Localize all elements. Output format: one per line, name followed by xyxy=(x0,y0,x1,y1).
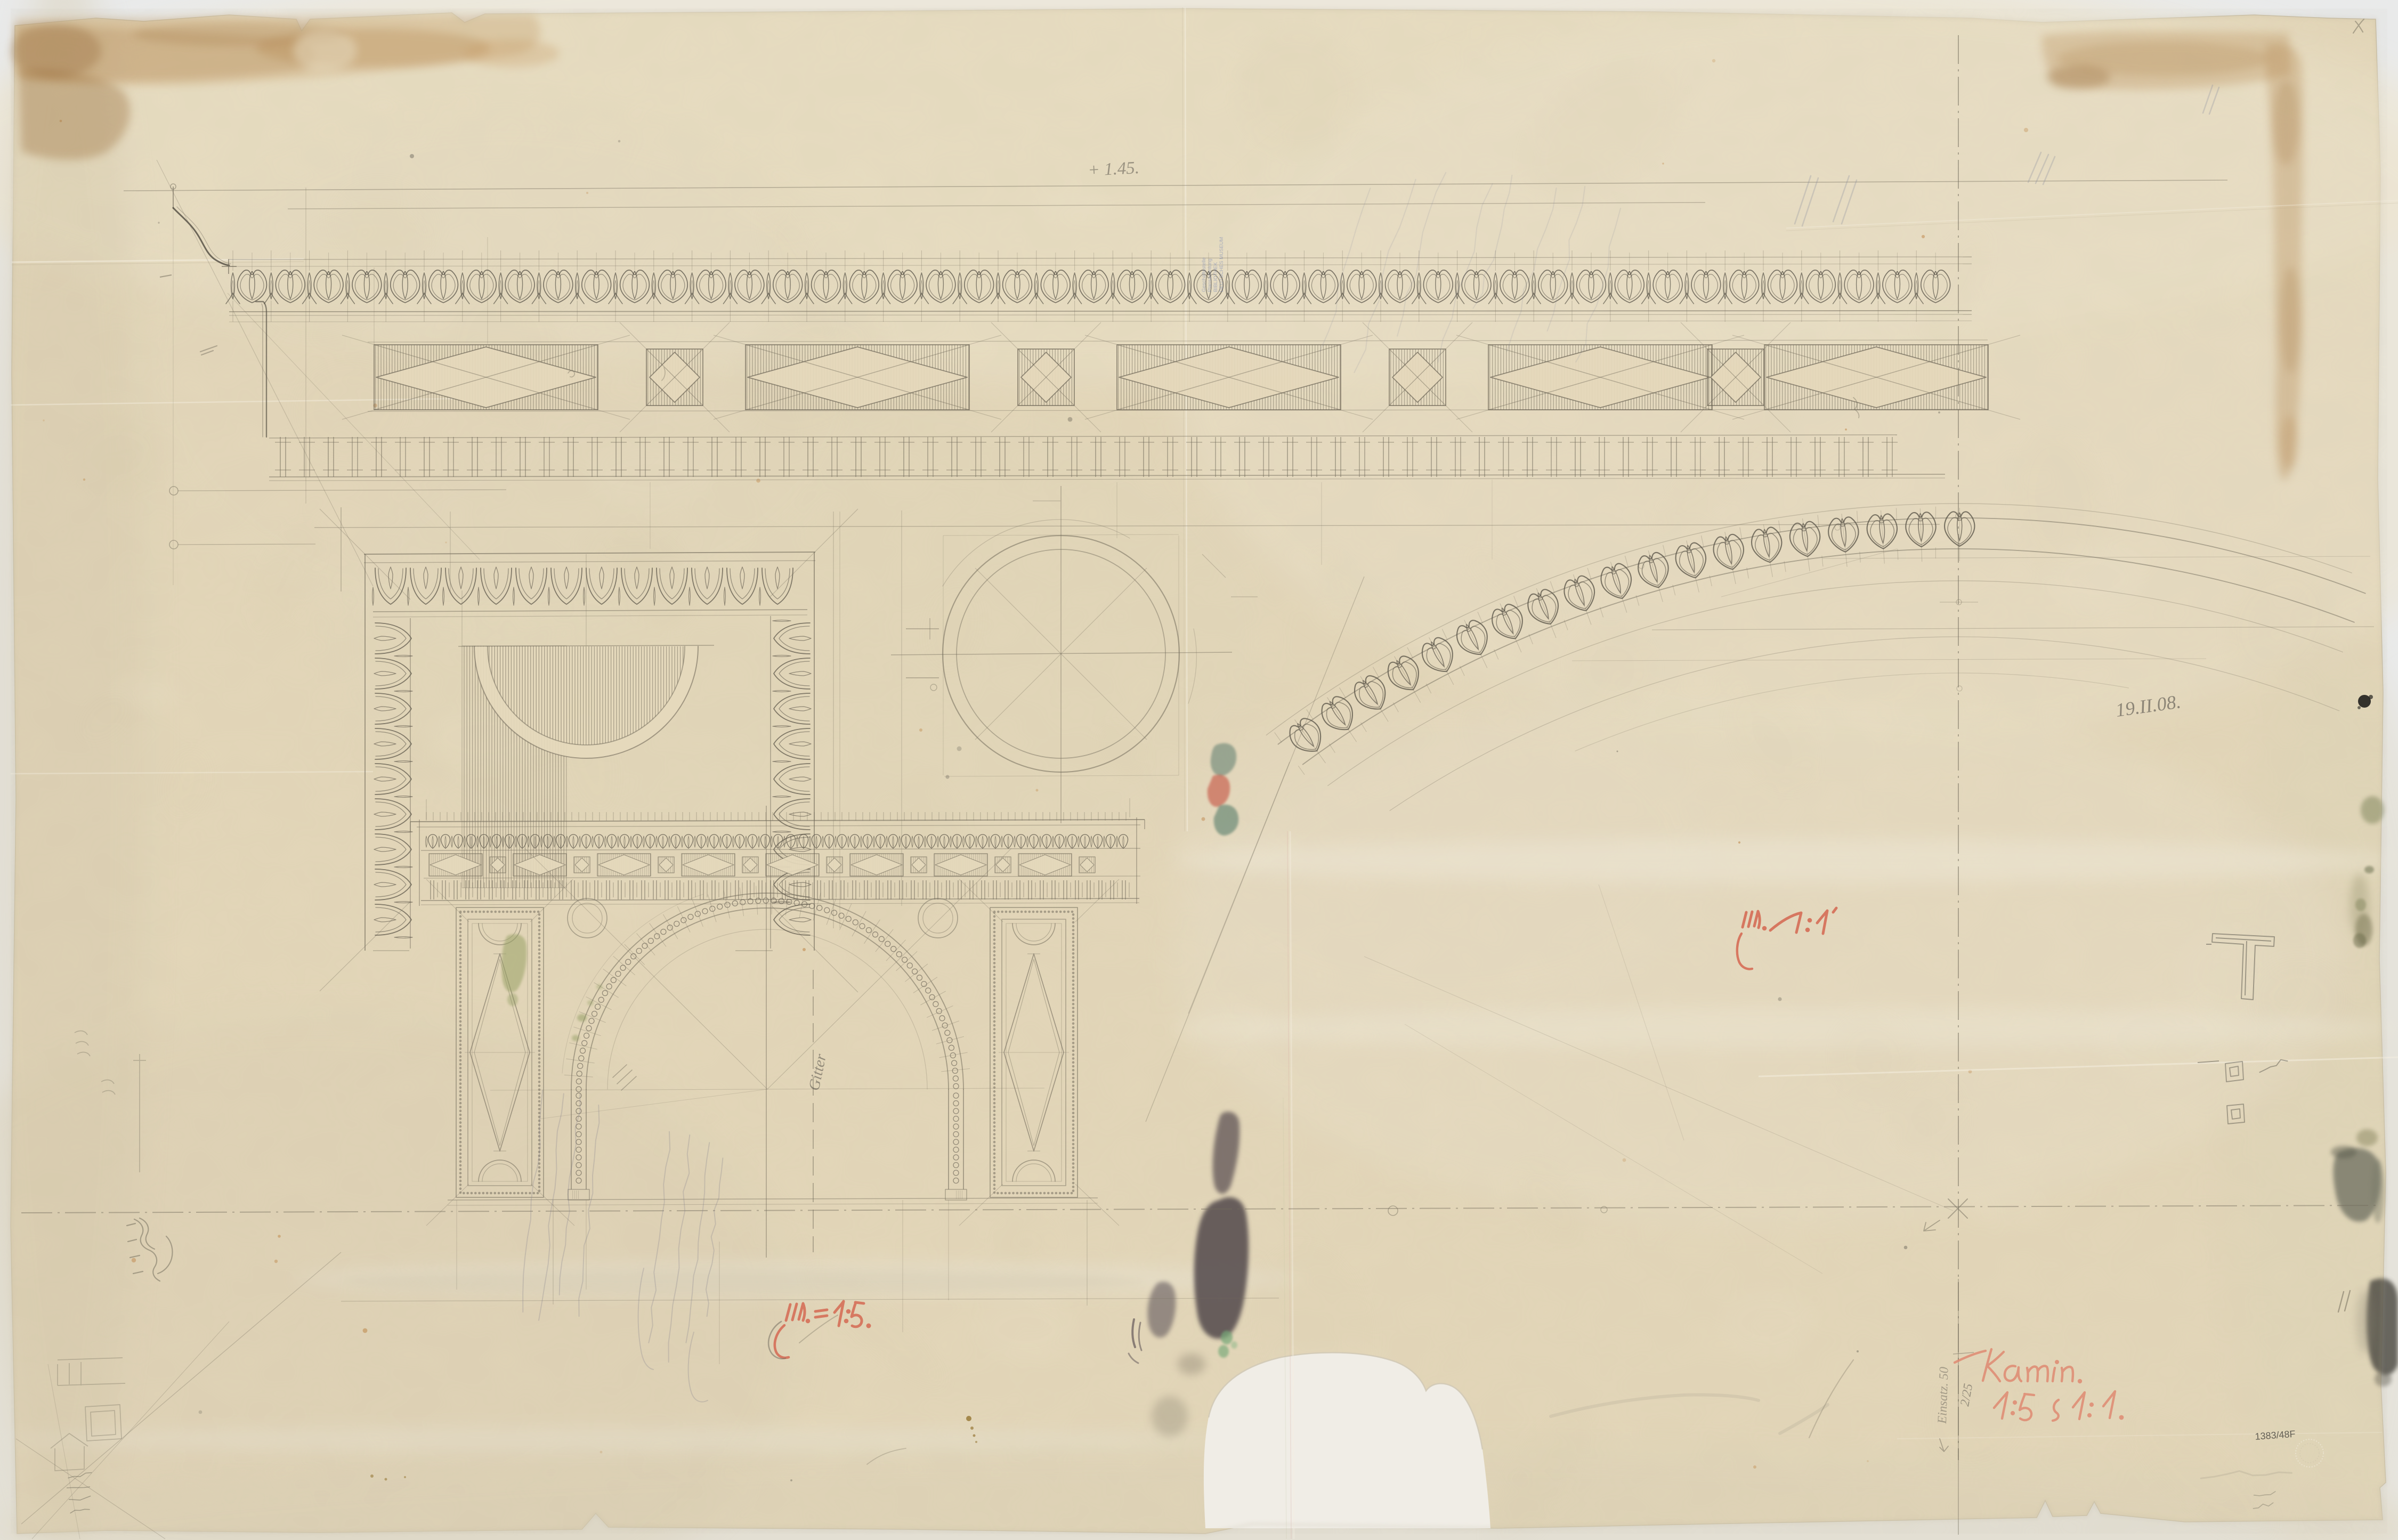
svg-text:Plansammlung: Plansammlung xyxy=(1207,258,1213,292)
svg-text:BIBLIOTHEK: BIBLIOTHEK xyxy=(1213,262,1219,292)
svg-text:+ 1.45.: + 1.45. xyxy=(1088,158,1140,180)
svg-text:DEUTSCHES MUSEUM: DEUTSCHES MUSEUM xyxy=(1219,237,1225,292)
svg-text:Geschäftsstelle: Geschäftsstelle xyxy=(1201,257,1207,292)
svg-text:Einsatz. 50: Einsatz. 50 xyxy=(1935,1367,1951,1425)
